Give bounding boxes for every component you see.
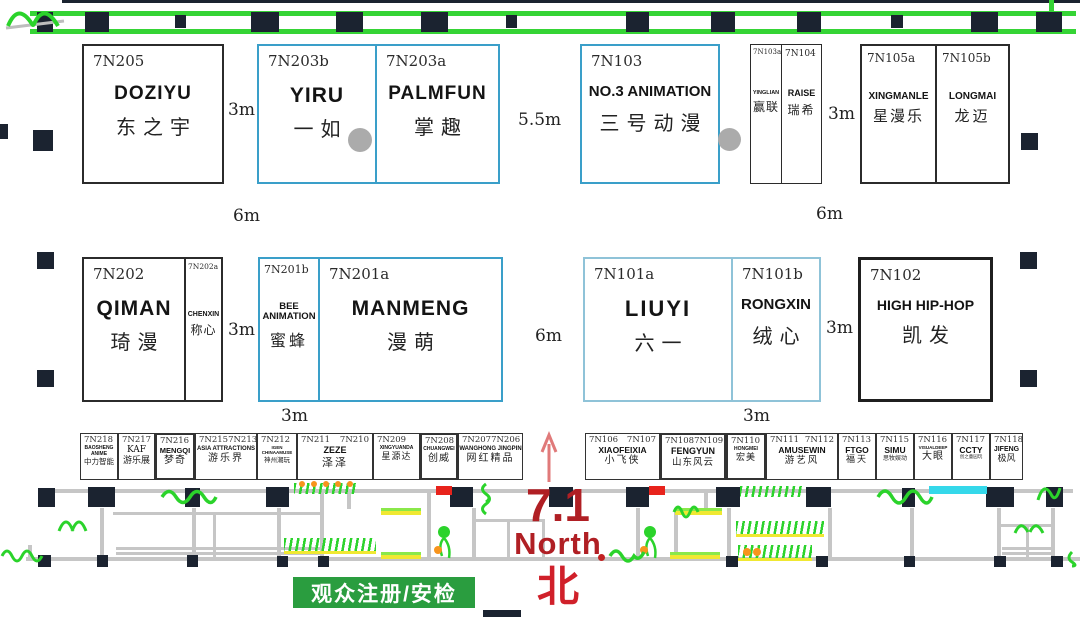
room-wall bbox=[1002, 552, 1054, 555]
pillar bbox=[1020, 370, 1037, 387]
booth-name-en: ZEZE bbox=[323, 446, 346, 455]
pillar bbox=[816, 556, 828, 567]
booth-name-en: CHENXIN bbox=[186, 311, 221, 319]
red-marker bbox=[436, 486, 452, 495]
booth-id: 7N1117N112 bbox=[767, 434, 837, 445]
plant-squiggle-icon bbox=[672, 500, 702, 516]
orange-dot bbox=[753, 548, 761, 556]
top-wall-line bbox=[62, 0, 1080, 3]
booth-name-en: RONGXIN bbox=[733, 297, 819, 314]
booth-name-en: YINGLIAN bbox=[751, 90, 781, 96]
pillar bbox=[266, 487, 289, 507]
booth-name-zh: 福天 bbox=[846, 456, 868, 465]
booth-id: 7N1087N109 bbox=[662, 435, 724, 446]
booth-id: 7N212 bbox=[258, 434, 296, 445]
booth-7N103a: 7N103a YINGLIAN 赢联 bbox=[751, 45, 782, 183]
orange-dot bbox=[335, 481, 341, 487]
booth-name-zh: 创之童园玩 bbox=[960, 456, 983, 461]
booth-name-zh: 小飞侠 bbox=[605, 456, 641, 467]
booth-id: 7N205 bbox=[84, 46, 222, 70]
booth-name-en: MANMENG bbox=[320, 297, 501, 320]
booth-name-zh: 网红精品 bbox=[467, 454, 515, 465]
booth-group-7N103a-7N104: 7N103a YINGLIAN 赢联 7N104 RAISE 瑞希 bbox=[750, 44, 822, 184]
booth-id: 7N216 bbox=[157, 435, 193, 446]
booth-name-zh: 凯发 bbox=[861, 319, 990, 348]
pillar bbox=[175, 15, 186, 28]
orange-dot bbox=[299, 481, 305, 487]
pillar bbox=[450, 487, 473, 507]
booth-group-7N201: 7N201b BEE ANIMATION 蜜蜂 7N201a MANMENG 漫… bbox=[258, 257, 503, 402]
booth-7N209: 7N209 XINGYUANDA 星源达 bbox=[373, 433, 420, 480]
booth-name-zh: 大眼 bbox=[922, 452, 944, 463]
booth-7N111-7N112: 7N1117N112 AMUSEWIN 游艺风 bbox=[766, 433, 838, 480]
pillar bbox=[318, 556, 329, 567]
booth-id: 7N208 bbox=[422, 435, 456, 446]
corridor-wall bbox=[100, 508, 104, 558]
booth-name-en: WANGHONG JINGPIN bbox=[459, 446, 521, 452]
pillar bbox=[797, 12, 821, 32]
pillar bbox=[33, 130, 53, 151]
plant-vine-icon bbox=[1064, 550, 1080, 568]
pillar bbox=[421, 12, 448, 32]
booth-name-zh: 极风 bbox=[997, 455, 1015, 464]
booth-id: 7N218 bbox=[81, 434, 117, 445]
plant-arches-icon bbox=[1012, 516, 1048, 536]
booth-id: 7N2117N210 bbox=[298, 434, 372, 445]
booth-name-en: PALMFUN bbox=[377, 84, 498, 105]
booth-7N101a: 7N101a LIUYI 六一 bbox=[585, 259, 733, 400]
booth-name-en: BAOSHENG ANIME bbox=[81, 446, 117, 457]
booth-id: 7N2157N213 bbox=[196, 434, 256, 445]
booth-7N216: 7N216 MENGQI 梦奇 bbox=[155, 433, 195, 480]
booth-id: 7N113 bbox=[839, 434, 875, 445]
booth-name-zh: 山东风云 bbox=[672, 458, 714, 468]
pillar bbox=[97, 555, 108, 567]
booth-name-en: FTGO bbox=[845, 446, 869, 455]
corridor-wall bbox=[910, 508, 914, 558]
plant-vine-icon bbox=[477, 482, 495, 520]
room-wall bbox=[113, 512, 323, 515]
booth-name-zh: 游乐界 bbox=[208, 454, 244, 465]
booth-id: 7N202 bbox=[84, 259, 184, 283]
booth-id: 7N201b bbox=[260, 259, 318, 276]
booth-id: 7N116 bbox=[915, 434, 951, 445]
plant-figure-icon bbox=[432, 518, 462, 560]
booth-name-en: QIMAN bbox=[84, 297, 184, 320]
pillar bbox=[806, 487, 831, 507]
booth-group-7N101: 7N101a LIUYI 六一 7N101b RONGXIN 绒心 bbox=[583, 257, 821, 402]
booth-id: 7N203b bbox=[259, 46, 375, 70]
corridor-wall bbox=[472, 508, 476, 558]
pillar bbox=[1051, 556, 1063, 567]
pillar bbox=[251, 12, 279, 32]
booth-7N211-7N210: 7N2117N210 ZEZE 泽泽 bbox=[297, 433, 373, 480]
booth-name-en: LIUYI bbox=[585, 297, 731, 321]
pillar bbox=[85, 12, 109, 32]
booth-7N118: 7N118 JIFENG 极风 bbox=[990, 433, 1023, 480]
booth-name-en: YIRU bbox=[259, 84, 375, 107]
booth-name-en: HONGMEI bbox=[734, 447, 758, 452]
booth-id: 7N203a bbox=[377, 46, 498, 70]
dim-label: 3m bbox=[743, 406, 770, 426]
dim-label: 3m bbox=[228, 100, 255, 120]
plant-strip bbox=[381, 508, 421, 515]
booth-name-en: CHUANGWEI bbox=[423, 447, 454, 452]
booth-7N218: 7N218 BAOSHENG ANIME 中力智能 bbox=[80, 433, 118, 480]
booth-name-zh: 东之宇 bbox=[84, 111, 222, 140]
booth-id: 7N217 bbox=[119, 434, 154, 445]
booth-id: 7N103a bbox=[751, 45, 781, 56]
pillar bbox=[38, 488, 55, 507]
booth-name-zh: 思牧娱动 bbox=[883, 456, 907, 462]
booth-name-zh: 琦漫 bbox=[84, 326, 184, 355]
booth-name-zh: 称心 bbox=[186, 321, 221, 338]
dim-label: 3m bbox=[281, 406, 308, 426]
booth-id: 7N117 bbox=[953, 434, 989, 445]
booth-7N113: 7N113 FTGO 福天 bbox=[838, 433, 876, 480]
pillar bbox=[626, 487, 649, 507]
booth-7N117: 7N117 CCTY 创之童园玩 bbox=[952, 433, 990, 480]
booth-name-zh: 中力智能 bbox=[84, 458, 114, 466]
pillar bbox=[971, 12, 998, 32]
booth-7N201a: 7N201a MANMENG 漫萌 bbox=[320, 259, 501, 400]
booth-name-zh: 漫萌 bbox=[320, 326, 501, 355]
orange-dot bbox=[347, 481, 353, 487]
plant-arches-icon bbox=[56, 510, 90, 534]
booth-name-zh: 游乐展 bbox=[123, 457, 150, 466]
pillar bbox=[0, 124, 8, 139]
pillar bbox=[336, 12, 363, 32]
dim-label: 6m bbox=[816, 204, 843, 224]
booth-name-en: ASIA ATTRACTIONS bbox=[197, 446, 255, 452]
booth-name-en: CCTY bbox=[959, 446, 982, 455]
booth-id: 7N118 bbox=[991, 434, 1022, 445]
plant-strip bbox=[736, 521, 824, 537]
booth-id: 7N105a bbox=[862, 46, 935, 65]
pillar bbox=[716, 487, 740, 507]
booth-id: 7N101b bbox=[733, 259, 819, 283]
pillar bbox=[277, 556, 288, 567]
booth-7N106-7N107: 7N1067N107 XIAOFEIXIA 小飞侠 bbox=[585, 433, 660, 480]
pillar bbox=[1021, 133, 1038, 150]
booth-7N203a: 7N203a PALMFUN 掌趣 bbox=[377, 46, 498, 182]
dim-label: 3m bbox=[828, 104, 855, 124]
booth-id: 7N209 bbox=[374, 434, 419, 445]
booth-name-zh: 梦奇 bbox=[164, 456, 186, 467]
booth-7N105b: 7N105b LONGMAI 龙迈 bbox=[937, 46, 1008, 182]
booth-name-zh: 三号动漫 bbox=[582, 107, 718, 136]
orange-dot bbox=[323, 481, 329, 487]
booth-7N212: 7N212 IGEN CHINAAMUSE 神州潮玩 bbox=[257, 433, 297, 480]
green-wall-lower bbox=[30, 29, 1076, 34]
pillar bbox=[37, 252, 54, 269]
corridor-wall bbox=[1051, 508, 1055, 558]
booth-group-7N105: 7N105a XINGMANLE 星漫乐 7N105b LONGMAI 龙迈 bbox=[860, 44, 1010, 184]
plant-strip bbox=[740, 486, 802, 497]
booth-name-zh: 绒心 bbox=[733, 320, 819, 349]
pillar bbox=[626, 12, 649, 32]
booth-name-en: FENGYUN bbox=[671, 447, 715, 456]
room-wall bbox=[1002, 547, 1054, 550]
dim-label: 3m bbox=[228, 320, 255, 340]
pillar bbox=[37, 370, 54, 387]
pillar bbox=[1020, 252, 1037, 269]
booth-name-zh: 星漫乐 bbox=[862, 105, 935, 126]
pillar bbox=[726, 556, 738, 567]
booth-id: 7N102 bbox=[861, 260, 990, 284]
booth-group-7N202: 7N202 QIMAN 琦漫 7N202a CHENXIN 称心 bbox=[82, 257, 223, 402]
booth-7N202a: 7N202a CHENXIN 称心 bbox=[186, 259, 221, 400]
booth-7N207-7N206: 7N2077N206 WANGHONG JINGPIN 网红精品 bbox=[458, 433, 523, 480]
booth-7N103: 7N103 NO.3 ANIMATION 三号动漫 bbox=[580, 44, 720, 184]
booth-name-zh: 赢联 bbox=[751, 98, 781, 115]
booth-7N102: 7N102 HIGH HIP-HOP 凯发 bbox=[858, 257, 993, 402]
red-marker bbox=[649, 486, 665, 495]
booth-name-en: XINGMANLE bbox=[862, 91, 935, 102]
booth-name-zh: 创威 bbox=[428, 454, 450, 465]
booth-id: 7N110 bbox=[728, 435, 764, 446]
pillar bbox=[88, 487, 115, 507]
booth-name-en: DOZIYU bbox=[84, 84, 222, 105]
column-circle bbox=[718, 128, 741, 151]
booth-7N215-7N213: 7N2157N213 ASIA ATTRACTIONS 游乐界 bbox=[195, 433, 257, 480]
booth-name-en: AMUSEWIN bbox=[778, 446, 825, 455]
booth-7N104: 7N104 RAISE 瑞希 bbox=[782, 45, 821, 183]
north-label-zh: 北 bbox=[508, 566, 608, 608]
dim-label: 5.5m bbox=[518, 110, 561, 130]
dim-label: 6m bbox=[233, 206, 260, 226]
booth-7N110: 7N110 HONGMEI 宏美 bbox=[726, 433, 766, 480]
booth-name-en: RAISE bbox=[782, 89, 821, 99]
booth-name-en: LONGMAI bbox=[937, 91, 1008, 102]
plant-strip bbox=[670, 552, 720, 559]
booth-id: 7N101a bbox=[585, 259, 731, 283]
booth-name-zh: 游艺风 bbox=[785, 456, 820, 466]
dim-label: 3m bbox=[826, 318, 853, 338]
corridor-wall bbox=[997, 508, 1001, 558]
booth-7N108-7N109: 7N1087N109 FENGYUN 山东风云 bbox=[660, 433, 726, 480]
booth-name-en: JIFENG bbox=[994, 446, 1019, 453]
plant-strip bbox=[284, 538, 376, 554]
booth-id: 7N104 bbox=[782, 45, 821, 59]
corridor-wall bbox=[277, 508, 281, 558]
corridor-wall bbox=[704, 489, 708, 509]
plant-squiggle-icon bbox=[1034, 478, 1064, 504]
booth-name-zh: 宏美 bbox=[736, 454, 756, 463]
green-wall-upper bbox=[30, 11, 1076, 16]
cyan-strip bbox=[929, 486, 987, 494]
pillar bbox=[904, 556, 915, 567]
plant-squiggle-icon bbox=[160, 484, 218, 504]
north-arrow-icon bbox=[539, 430, 559, 484]
pillar bbox=[891, 15, 903, 28]
booth-7N205: 7N205 DOZIYU 东之宇 bbox=[82, 44, 224, 184]
booth-name-en: SIMU bbox=[884, 446, 905, 455]
booth-name-en: IGEN CHINAAMUSE bbox=[258, 446, 296, 455]
booth-name-zh: 瑞希 bbox=[782, 101, 821, 118]
corridor-wall bbox=[828, 508, 832, 558]
booth-7N116: 7N116 VISUALDEEP 大眼 bbox=[914, 433, 952, 480]
booth-name-en: XIAOFEIXIA bbox=[598, 446, 646, 455]
orange-dot bbox=[743, 548, 751, 556]
booth-name-zh: 泽泽 bbox=[322, 457, 348, 469]
pillar bbox=[506, 15, 517, 28]
pillar bbox=[187, 555, 198, 567]
dim-label: 6m bbox=[535, 326, 562, 346]
column-circle bbox=[348, 128, 372, 152]
pillar bbox=[1036, 12, 1062, 32]
booth-name-zh: 蜜蜂 bbox=[260, 327, 318, 351]
hall-number: 7.1 bbox=[508, 482, 608, 528]
booth-7N101b: 7N101b RONGXIN 绒心 bbox=[733, 259, 819, 400]
booth-name-zh: 星源达 bbox=[381, 453, 411, 462]
plant-squiggle-icon bbox=[6, 0, 66, 30]
booth-7N105a: 7N105a XINGMANLE 星漫乐 bbox=[862, 46, 937, 182]
plant-squiggle-icon bbox=[876, 483, 936, 507]
booth-id: 7N103 bbox=[582, 46, 718, 70]
booth-name-zh: 掌趣 bbox=[377, 111, 498, 140]
booth-id: 7N202a bbox=[186, 259, 221, 271]
corridor-wall bbox=[192, 508, 196, 558]
booth-id: 7N115 bbox=[877, 434, 913, 445]
booth-id: 7N201a bbox=[320, 259, 501, 283]
booth-7N202: 7N202 QIMAN 琦漫 bbox=[84, 259, 186, 400]
booth-group-7N203: 7N203b YIRU 一如 7N203a PALMFUN 掌趣 bbox=[257, 44, 500, 184]
orange-dot bbox=[311, 481, 317, 487]
plant-strip bbox=[381, 552, 421, 559]
booth-name-en: HIGH HIP-HOP bbox=[861, 298, 990, 313]
booth-name-zh: 龙迈 bbox=[937, 105, 1008, 126]
booth-name-zh: 神州潮玩 bbox=[264, 457, 290, 464]
booth-7N115: 7N115 SIMU 思牧娱动 bbox=[876, 433, 914, 480]
corridor-wall bbox=[727, 508, 731, 558]
booth-name-en: BEE ANIMATION bbox=[260, 302, 318, 323]
pillar bbox=[711, 12, 735, 32]
booth-id: 7N105b bbox=[937, 46, 1008, 65]
booth-7N201b: 7N201b BEE ANIMATION 蜜蜂 bbox=[260, 259, 320, 400]
booth-name-zh: 六一 bbox=[585, 327, 731, 356]
pillar bbox=[483, 610, 521, 617]
pillar bbox=[986, 487, 1014, 507]
booth-7N208: 7N208 CHUANGWEI 创威 bbox=[420, 433, 458, 480]
pillar bbox=[994, 556, 1006, 567]
booth-id: 7N2077N206 bbox=[459, 434, 522, 445]
north-label-en: North bbox=[498, 528, 618, 559]
plant-squiggle-icon bbox=[0, 544, 44, 564]
booth-name-en: XINGYUANDA bbox=[380, 446, 414, 451]
booth-7N217: 7N217 KAF 游乐展 bbox=[118, 433, 155, 480]
registration-security-badge: 观众注册/安检 bbox=[293, 577, 475, 608]
booth-name-en: NO.3 ANIMATION bbox=[582, 84, 718, 101]
exhibition-floor-plan: 7N205 DOZIYU 东之宇 7N203b YIRU 一如 7N203a P… bbox=[0, 0, 1080, 617]
booth-id: 7N1067N107 bbox=[586, 434, 659, 445]
booth-name-en: KAF bbox=[127, 446, 146, 455]
corridor-wall bbox=[427, 489, 431, 559]
booth-7N203b: 7N203b YIRU 一如 bbox=[259, 46, 377, 182]
